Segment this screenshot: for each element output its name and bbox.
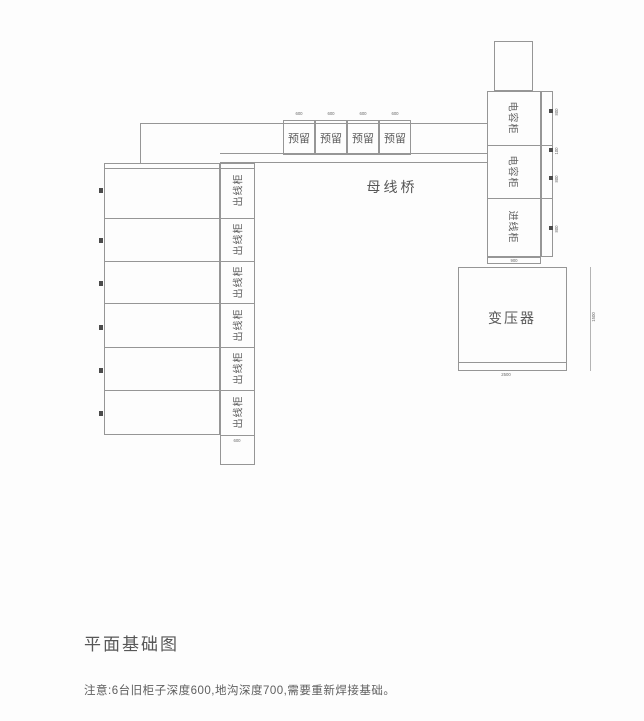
busbar-bridge-label: 母线桥 (367, 177, 418, 197)
right-cabinet-divider (487, 145, 553, 146)
dimension-label: 600 (233, 438, 240, 443)
outgoing-cabinet-label: 出线柜 (230, 223, 245, 256)
dimension-label: 800 (554, 175, 559, 182)
dimension-label: 600 (359, 111, 366, 116)
foundation-tick (99, 325, 103, 330)
transformer-base-line (458, 362, 567, 363)
dimension-label: 1500 (591, 312, 596, 321)
dimension-label: 600 (391, 111, 398, 116)
drawing-title: 平面基础图 (84, 630, 179, 655)
outgoing-cabinet-label: 出线柜 (230, 352, 245, 385)
plan-drawing-canvas: 出线柜 出线柜 出线柜 出线柜 出线柜 出线柜 600 母线桥 预留 预留 预留… (0, 0, 644, 721)
reserved-slot-label: 预留 (288, 130, 310, 146)
foundation-tick (549, 148, 553, 152)
foundation-tick (99, 281, 103, 286)
capacitor-cabinet-label: 电容柜 (507, 156, 522, 189)
dimension-label: 600 (327, 111, 334, 116)
dimension-label: 600 (295, 111, 302, 116)
foundation-tick (99, 238, 103, 243)
foundation-tick (99, 368, 103, 373)
incoming-cabinet-label: 进线柜 (507, 211, 522, 244)
outgoing-cabinet-label: 出线柜 (230, 396, 245, 429)
right-side-channel (541, 91, 553, 257)
reserved-slot-label: 预留 (352, 130, 374, 146)
drawing-note: 注意:6台旧柜子深度600,地沟深度700,需要重新焊接基础。 (84, 682, 395, 698)
outgoing-cabinet-label: 出线柜 (230, 266, 245, 299)
dimension-label: 800 (554, 225, 559, 232)
busbar-outline-vertical (140, 123, 141, 163)
dimension-label: 900 (510, 258, 517, 263)
dimension-label: 100 (554, 147, 559, 154)
left-cabinet-block (104, 163, 220, 435)
reserved-slot-label: 预留 (320, 130, 342, 146)
dimension-label: 800 (554, 108, 559, 115)
busbar-band-line (220, 162, 487, 163)
outgoing-cabinet-label: 出线柜 (230, 309, 245, 342)
dimension-label: 2500 (501, 372, 510, 377)
foundation-tick (99, 411, 103, 416)
foundation-tick (549, 176, 553, 180)
capacitor-cabinet-label: 电容柜 (507, 102, 522, 135)
transformer-label: 变压器 (488, 308, 536, 328)
outgoing-cabinet-label: 出线柜 (230, 174, 245, 207)
busbar-riser-box (494, 41, 533, 91)
foundation-tick (99, 188, 103, 193)
foundation-tick (549, 109, 553, 113)
right-cabinet-divider (487, 198, 553, 199)
reserved-slot-label: 预留 (384, 130, 406, 146)
cabinet-row-divider (220, 435, 255, 436)
foundation-tick (549, 226, 553, 230)
